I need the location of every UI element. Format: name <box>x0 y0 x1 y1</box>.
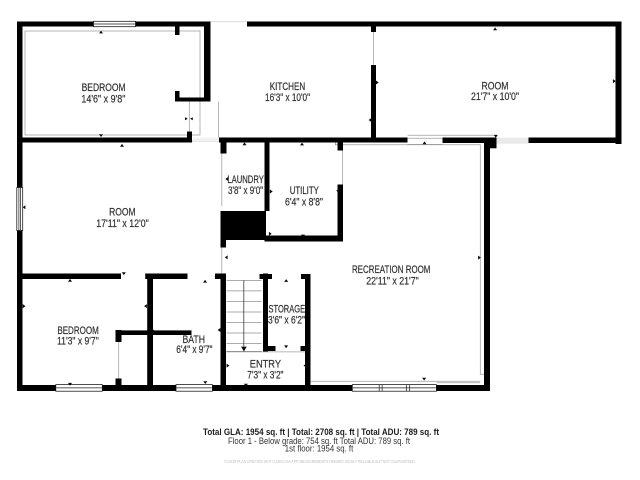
svg-text:3'6" x 6'2": 3'6" x 6'2" <box>268 314 305 326</box>
svg-text:7'3" x 3'2": 7'3" x 3'2" <box>247 370 283 382</box>
svg-text:3'8" x 9'0": 3'8" x 9'0" <box>228 185 263 197</box>
svg-text:16'3" x 10'0": 16'3" x 10'0" <box>265 92 310 104</box>
svg-text:BEDROOM: BEDROOM <box>82 82 126 94</box>
svg-text:UTILITY: UTILITY <box>290 185 319 197</box>
svg-text:FLOOR PLAN CREATED WITH CUBICA: FLOOR PLAN CREATED WITH CUBICASA APP. ME… <box>225 459 416 464</box>
svg-text:1st floor: 1954 sq. ft: 1st floor: 1954 sq. ft <box>285 444 354 455</box>
svg-text:22'11" x 21'7": 22'11" x 21'7" <box>366 276 419 288</box>
svg-text:6'4" x 8'8": 6'4" x 8'8" <box>285 197 323 209</box>
svg-text:11'3" x 9'7": 11'3" x 9'7" <box>57 336 99 348</box>
svg-text:14'6" x 9'8": 14'6" x 9'8" <box>81 94 125 106</box>
svg-text:17'11" x 12'0": 17'11" x 12'0" <box>96 218 149 230</box>
svg-text:RECREATION ROOM: RECREATION ROOM <box>352 264 431 276</box>
svg-text:21'7" x 10'0": 21'7" x 10'0" <box>471 91 519 103</box>
svg-text:6'4" x 9'7": 6'4" x 9'7" <box>176 344 212 356</box>
svg-text:ROOM: ROOM <box>109 207 136 219</box>
